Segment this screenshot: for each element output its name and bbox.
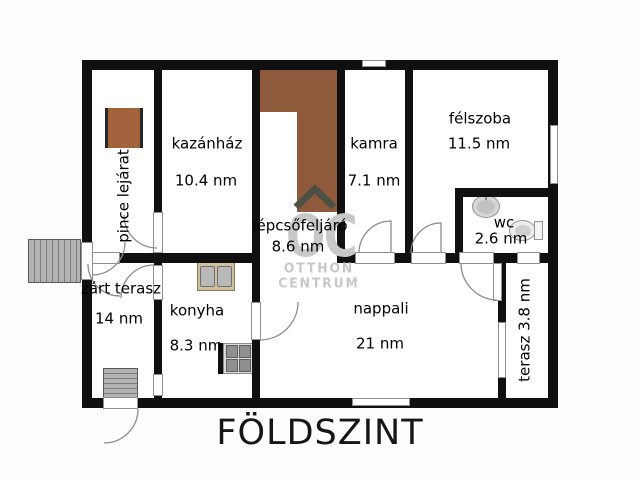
label-zart-terasz-area: 14 nm	[95, 312, 143, 327]
watermark-line1: OTTHON	[284, 262, 354, 277]
door-entrance	[81, 242, 93, 280]
floor-plan: OC OTTHON CENTRUM pince lejárat kazánház…	[0, 0, 640, 480]
label-wc-area: 2.6 nm	[475, 232, 528, 247]
watermark-line2: CENTRUM	[278, 277, 359, 292]
wall-wc-top	[455, 188, 548, 197]
arc-terrace-exit	[104, 409, 138, 443]
window-living-bottom	[352, 398, 410, 406]
door-kitchen-living	[251, 302, 261, 340]
label-lepcsofeljaro-area: 8.6 nm	[272, 240, 325, 255]
kitchen-sink-basin-left	[200, 266, 215, 287]
label-zart-terasz: zárt terasz	[81, 282, 161, 297]
washbasin-bowl	[477, 200, 495, 214]
label-wc: wc	[494, 216, 515, 231]
label-nappali-area: 21 nm	[356, 337, 404, 352]
wall-outer-left	[82, 60, 92, 408]
kitchen-sink-basin-right	[217, 266, 232, 287]
label-kamra: kamra	[350, 137, 398, 152]
toilet-tank	[534, 221, 543, 240]
wall-outer-right	[548, 60, 558, 408]
stove-burner-1	[226, 345, 238, 358]
passage-terrace-kitchen	[153, 374, 163, 396]
door-halfroom	[411, 252, 446, 264]
window-living-terrace	[498, 322, 506, 378]
stove-burner-3	[226, 359, 238, 372]
entrance-steps-icon	[28, 239, 81, 283]
label-konyha-area: 8.3 nm	[170, 339, 223, 354]
window-top	[362, 60, 386, 67]
label-felszoba-area: 11.5 nm	[448, 137, 510, 152]
door-wc-leaf	[493, 263, 502, 301]
door-wc	[459, 252, 494, 264]
window-halfroom-right	[550, 125, 558, 184]
stove-burner-4	[239, 359, 251, 372]
stairwell-upper-band	[260, 70, 337, 112]
terrace-steps-icon	[103, 368, 138, 398]
label-konyha: konyha	[170, 304, 224, 319]
stove-burner-2	[239, 345, 251, 358]
door-corridor-boiler	[153, 212, 163, 253]
label-felszoba: félszoba	[449, 112, 511, 127]
label-kazanhaz: kazánház	[172, 137, 243, 152]
label-terasz: terasz 3.8 nm	[518, 278, 533, 382]
door-terrace-exit	[103, 397, 138, 409]
page-title: FÖLDSZINT	[216, 413, 423, 453]
wall-outer-bottom	[82, 398, 558, 408]
label-nappali: nappali	[353, 302, 408, 317]
label-kazanhaz-area: 10.4 nm	[175, 174, 237, 189]
label-kamra-area: 7.1 nm	[348, 174, 401, 189]
basement-stairs	[105, 108, 143, 148]
stairwell-run	[297, 112, 337, 212]
door-pantry	[355, 252, 395, 264]
wall-outer-top	[82, 60, 558, 70]
wall-pantry-halfroom	[405, 70, 413, 263]
label-pince-lejarat: pince lejárat	[117, 149, 132, 242]
window-terrace-top	[517, 252, 540, 264]
watermark-logo: OC	[286, 202, 356, 270]
label-lepcsofeljaro: lépcsőfeljáró	[252, 219, 347, 234]
